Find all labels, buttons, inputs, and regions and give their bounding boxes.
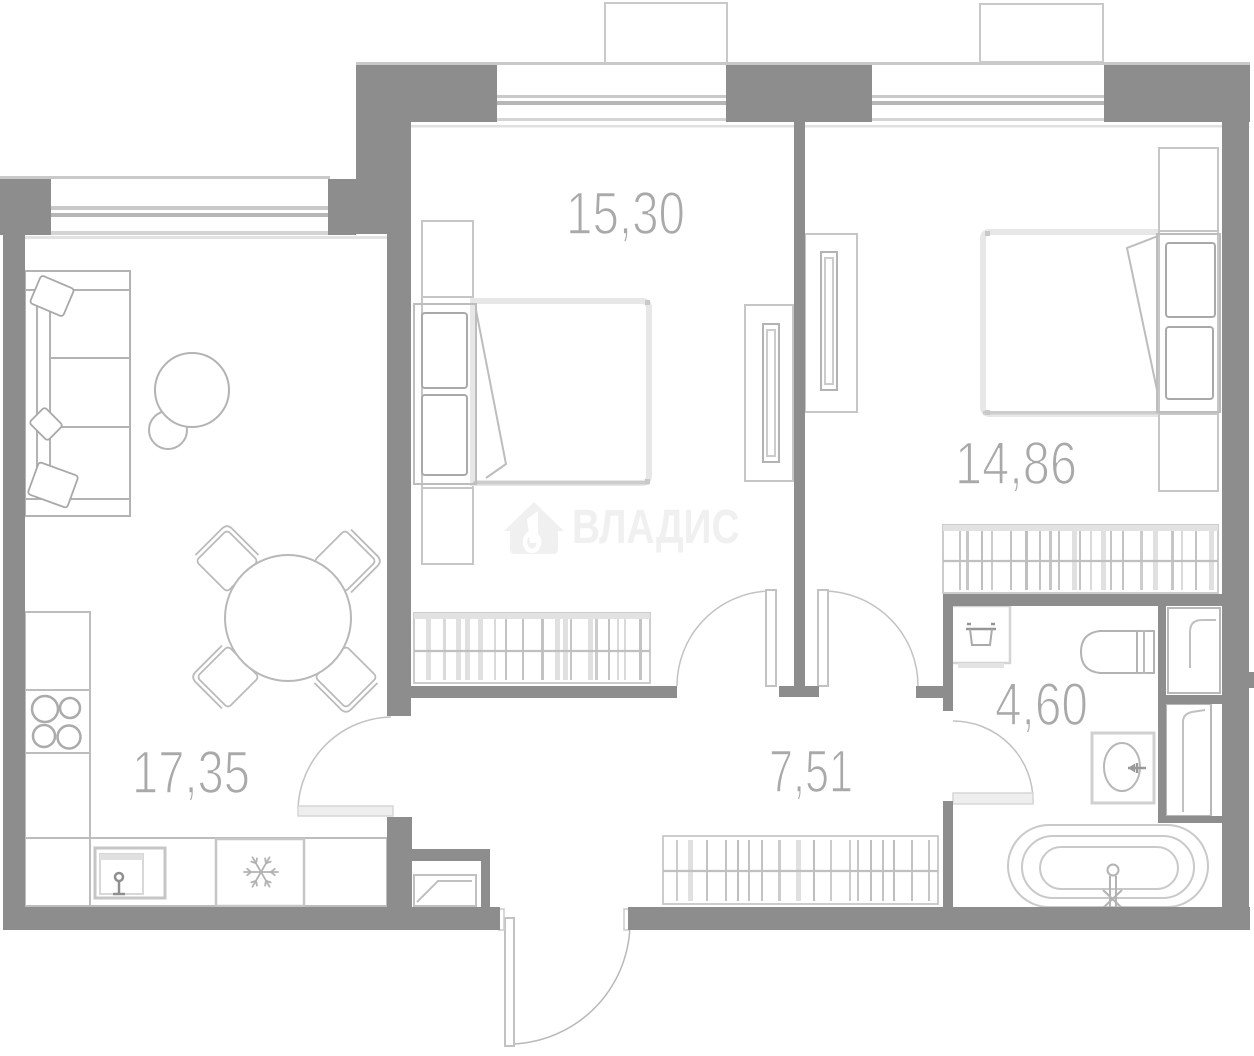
svg-text:4,60: 4,60 bbox=[995, 672, 1088, 738]
svg-text:17,35: 17,35 bbox=[132, 740, 250, 807]
svg-text:7,51: 7,51 bbox=[769, 739, 853, 806]
svg-text:ВЛАДИС: ВЛАДИС bbox=[572, 500, 740, 554]
svg-text:14,86: 14,86 bbox=[955, 430, 1077, 497]
svg-text:15,30: 15,30 bbox=[566, 181, 685, 247]
